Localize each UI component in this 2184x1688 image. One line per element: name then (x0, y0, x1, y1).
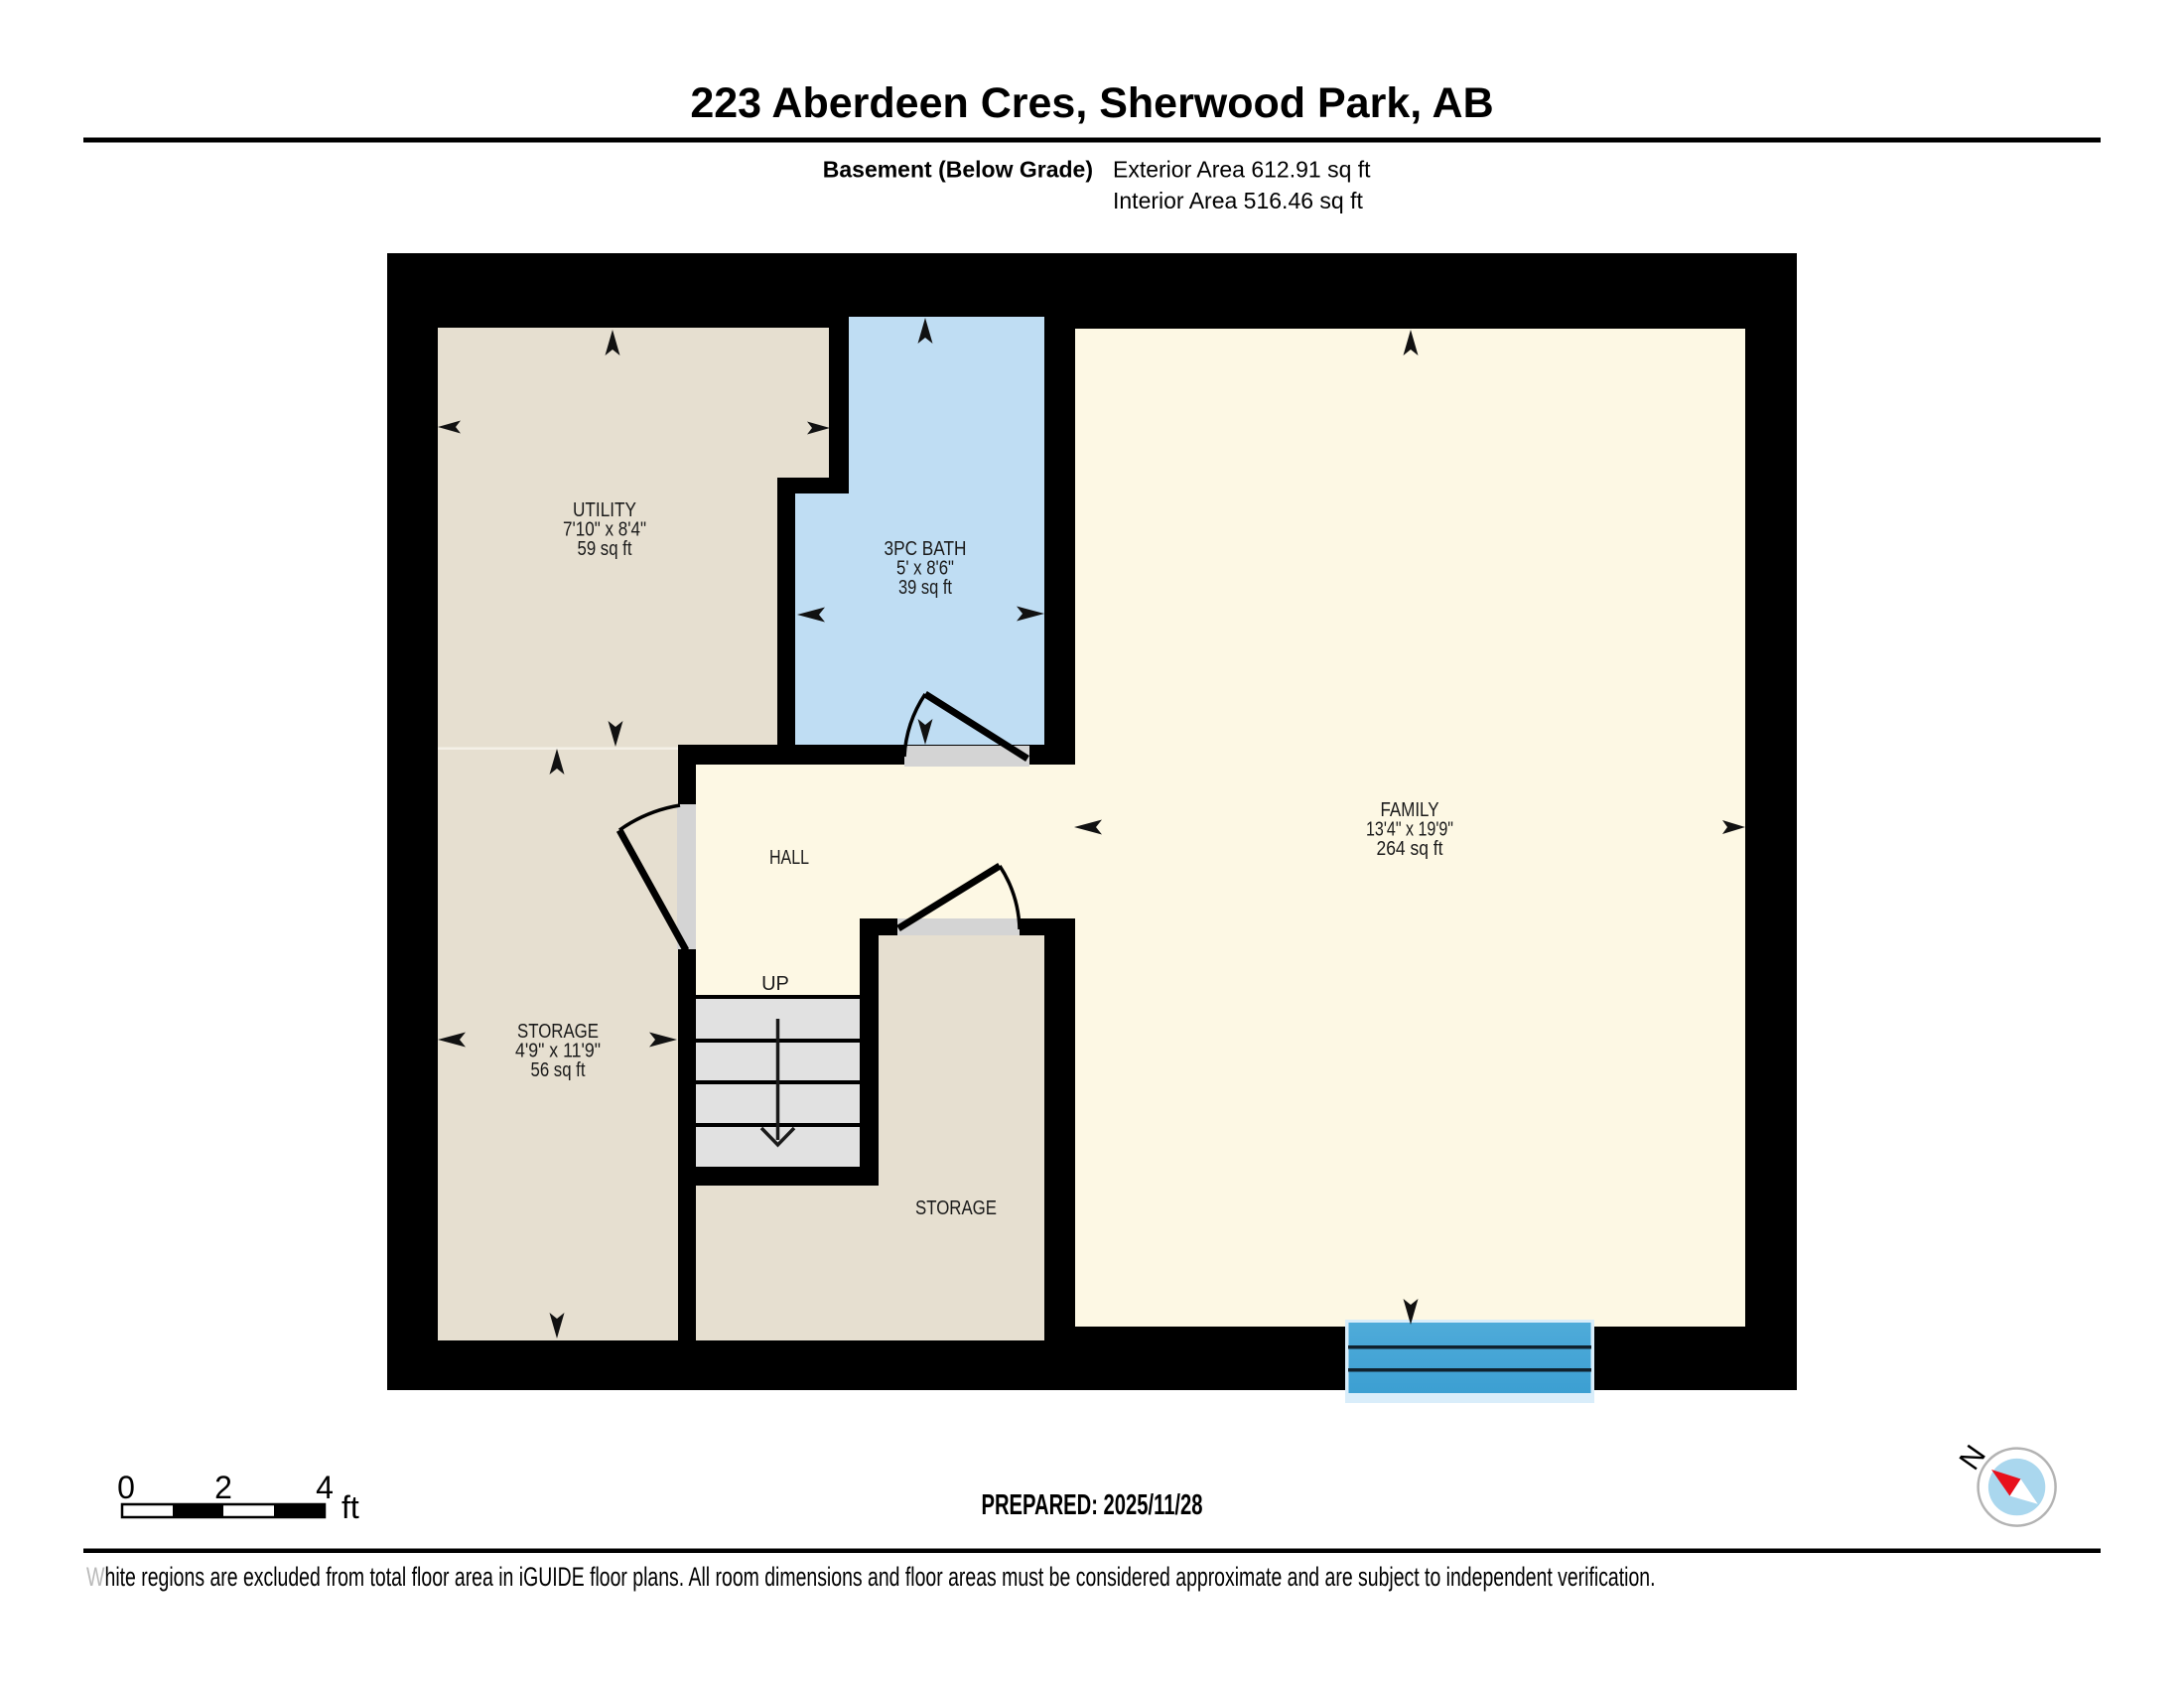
svg-text:39 sq ft: 39 sq ft (898, 577, 952, 599)
svg-text:56 sq ft: 56 sq ft (531, 1059, 586, 1081)
svg-text:UP: UP (761, 973, 789, 995)
svg-text:ft: ft (341, 1489, 359, 1525)
svg-text:264 sq ft: 264 sq ft (1377, 838, 1443, 860)
svg-text:W: W (86, 1562, 105, 1592)
svg-text:STORAGE: STORAGE (915, 1197, 997, 1219)
svg-text:2: 2 (214, 1470, 232, 1505)
svg-text:PREPARED: 2025/11/28: PREPARED: 2025/11/28 (982, 1489, 1203, 1521)
svg-text:Exterior Area 612.91 sq ft: Exterior Area 612.91 sq ft (1113, 157, 1371, 183)
svg-text:4: 4 (316, 1470, 334, 1505)
svg-text:Basement (Below Grade): Basement (Below Grade) (823, 157, 1093, 183)
svg-text:0: 0 (117, 1470, 135, 1505)
svg-text:HALL: HALL (769, 847, 809, 869)
svg-text:59 sq ft: 59 sq ft (578, 538, 632, 560)
svg-text:223 Aberdeen Cres, Sherwood Pa: 223 Aberdeen Cres, Sherwood Park, AB (690, 79, 1493, 127)
svg-text:Interior Area 516.46 sq ft: Interior Area 516.46 sq ft (1113, 188, 1363, 213)
svg-text:hite regions are excluded from: hite regions are excluded from total flo… (105, 1562, 1656, 1592)
